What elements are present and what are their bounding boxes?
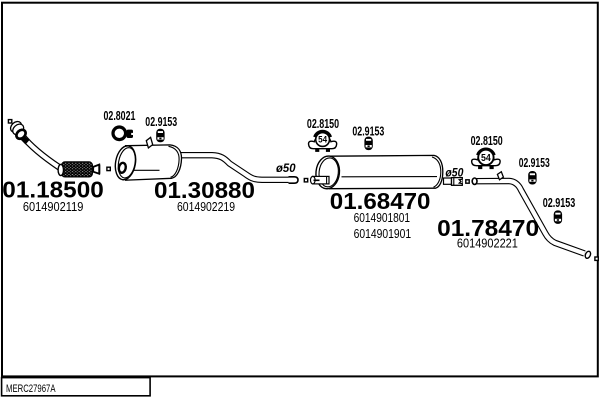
svg-text:02.8150: 02.8150 xyxy=(307,116,339,131)
svg-text:02.8021: 02.8021 xyxy=(104,108,136,123)
svg-text:6014901901: 6014901901 xyxy=(354,226,412,241)
svg-text:6014902119: 6014902119 xyxy=(23,199,84,214)
svg-text:6014902221: 6014902221 xyxy=(457,236,518,251)
svg-text:02.9153: 02.9153 xyxy=(543,195,576,210)
svg-text:02.8150: 02.8150 xyxy=(471,133,503,148)
svg-text:MERC27967A: MERC27967A xyxy=(6,383,56,395)
svg-text:02.9153: 02.9153 xyxy=(145,114,177,129)
svg-text:54: 54 xyxy=(481,153,491,164)
svg-text:6014902219: 6014902219 xyxy=(177,199,235,214)
svg-text:ø50: ø50 xyxy=(445,165,463,179)
svg-text:54: 54 xyxy=(318,135,327,145)
svg-text:02.9153: 02.9153 xyxy=(352,123,384,138)
svg-text:ø50: ø50 xyxy=(276,161,296,175)
svg-text:6014901801: 6014901801 xyxy=(354,210,411,225)
svg-text:02.9153: 02.9153 xyxy=(519,155,550,170)
